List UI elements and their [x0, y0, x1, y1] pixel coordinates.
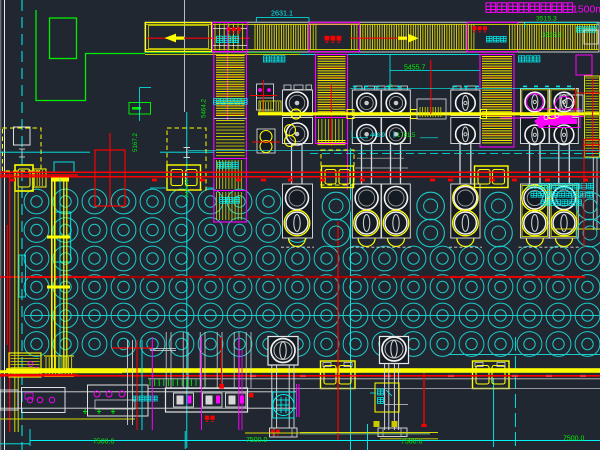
svg-text:7500.0: 7500.0 — [563, 435, 585, 442]
svg-text:3515.3: 3515.3 — [536, 15, 557, 22]
svg-text:5464.2: 5464.2 — [201, 99, 208, 118]
svg-text:7500.0: 7500.0 — [401, 439, 423, 446]
svg-text:448.9: 448.9 — [370, 133, 386, 139]
svg-text:5455.7: 5455.7 — [404, 64, 426, 71]
svg-text:1761.5: 1761.5 — [397, 133, 416, 139]
svg-text:1500m: 1500m — [572, 3, 600, 15]
svg-text:7500.0: 7500.0 — [246, 437, 268, 444]
svg-text:60b: 60b — [527, 185, 538, 191]
svg-text:3515.3: 3515.3 — [542, 32, 561, 39]
svg-text:5167.2: 5167.2 — [132, 133, 139, 152]
svg-text:7500.0: 7500.0 — [93, 439, 115, 446]
svg-text:2631.1: 2631.1 — [271, 9, 293, 18]
